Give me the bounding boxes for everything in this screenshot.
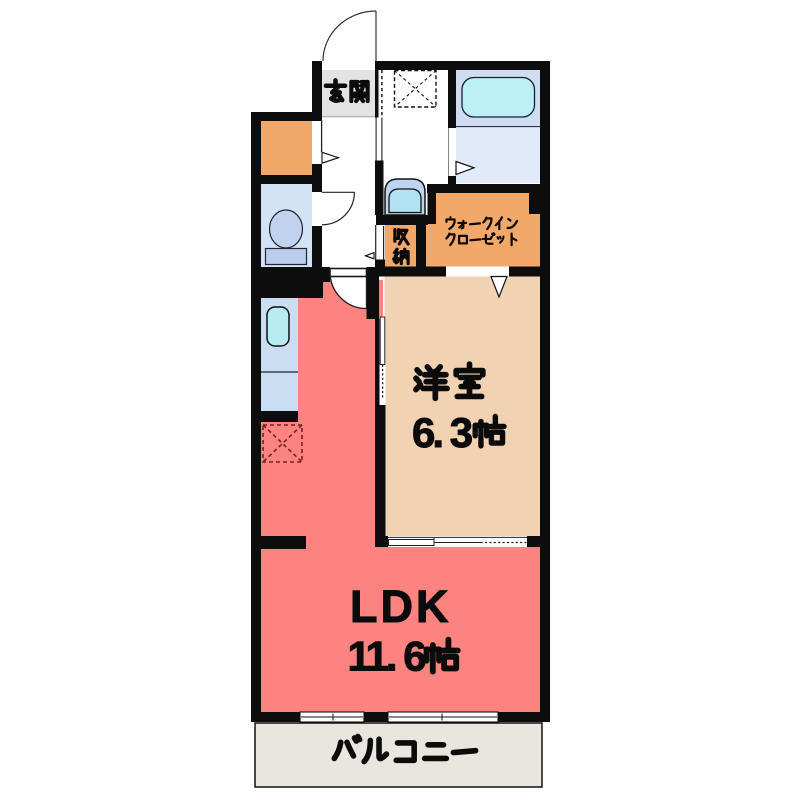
svg-text:6. 3: 6. 3 — [412, 409, 472, 456]
svg-text:11. 6: 11. 6 — [348, 633, 426, 680]
svg-text:LDK: LDK — [350, 581, 451, 632]
